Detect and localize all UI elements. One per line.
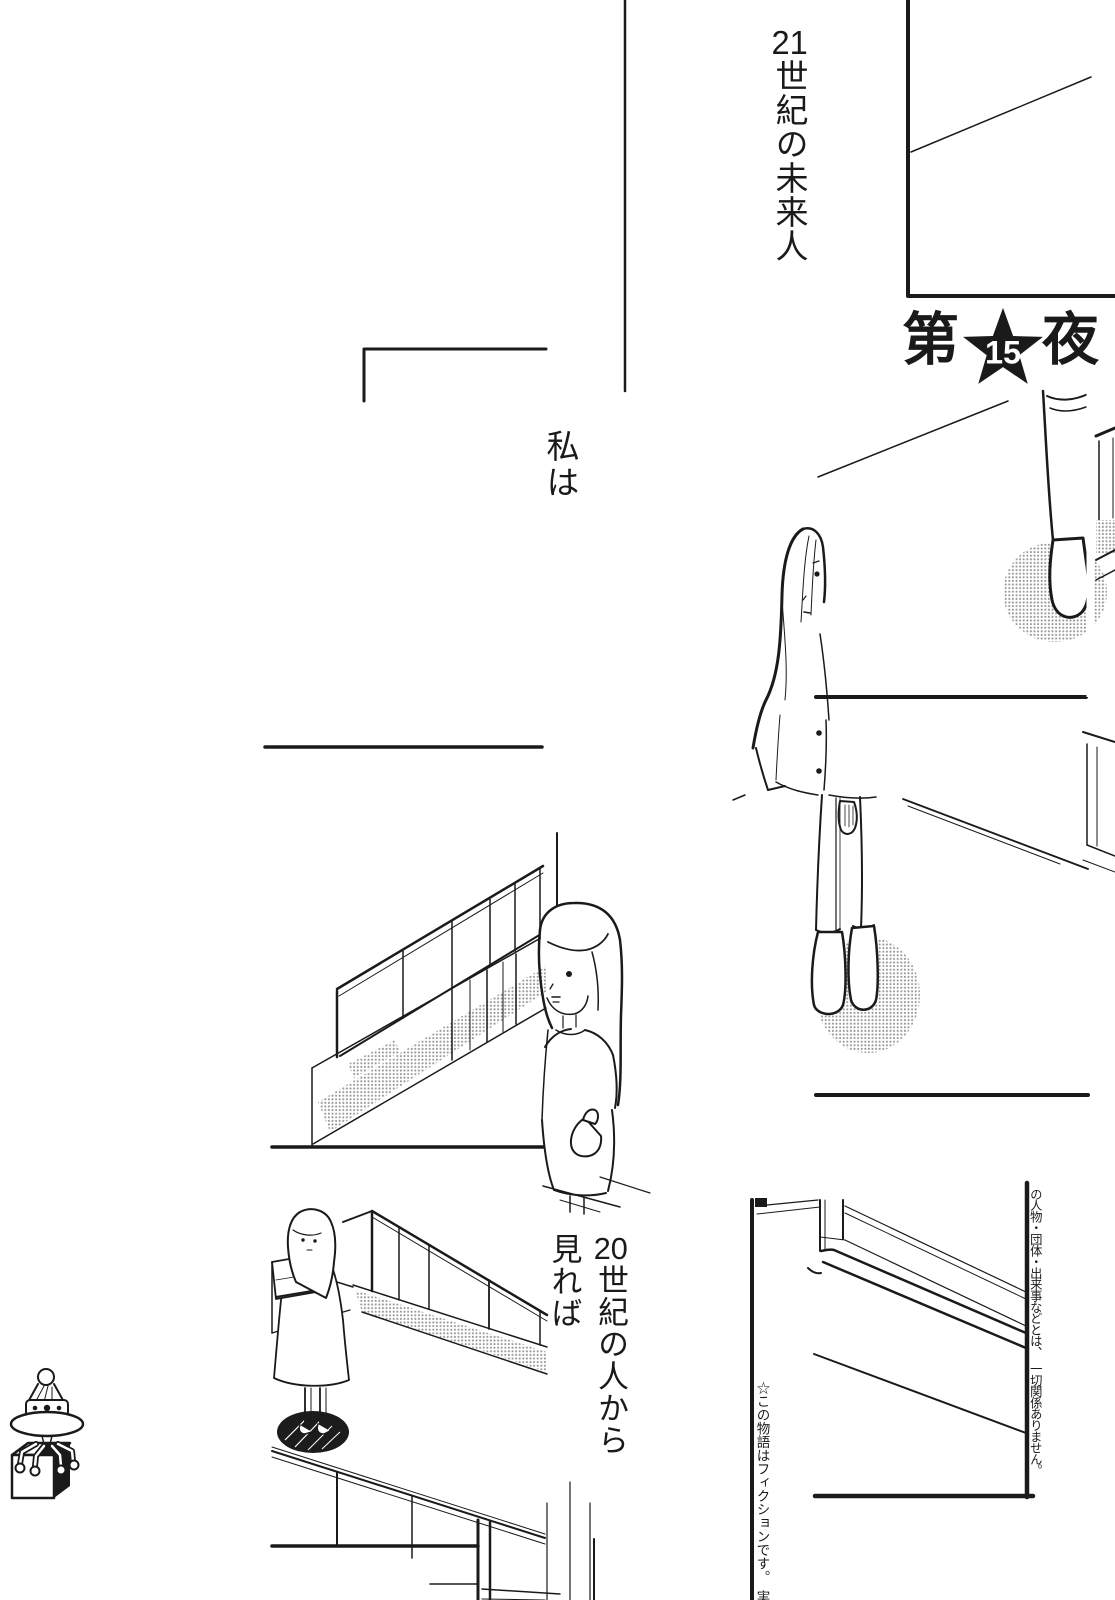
panel-gutter: [1087, 390, 1095, 697]
caption-from-line1-tail: 世紀の人から: [593, 1264, 628, 1456]
window-frame: [1083, 732, 1115, 742]
floor-line: [814, 1354, 1026, 1433]
hair-fill: [540, 903, 622, 1105]
caption-opening-tail: 世紀の未来人: [771, 59, 808, 263]
floor-edge: [903, 799, 1088, 869]
ufo-robot-carrying-cube-icon: [11, 1369, 83, 1498]
caption-from-line1: 20世紀の人から: [587, 1233, 634, 1456]
chapter-title-suffix: 夜: [1042, 312, 1099, 369]
disclaimer-column-second: の人物・団体・出来事などとは、 一切関係ありません。: [1029, 1188, 1041, 1476]
top-right-panel: [908, 0, 1115, 296]
saucer: [11, 1412, 83, 1436]
bottom-right-window-panel: [752, 1183, 1033, 1600]
window-sill: [821, 1250, 1026, 1333]
caption-from: 20世紀の人から見れば: [540, 1233, 633, 1456]
antenna-ball: [38, 1369, 54, 1385]
right-upper-panel: [816, 390, 1107, 697]
button: [816, 768, 822, 774]
leg: [860, 797, 862, 928]
foot: [848, 926, 877, 1010]
caption-from-digits: 20: [593, 1233, 628, 1264]
railing-top: [337, 866, 543, 989]
button: [816, 730, 822, 736]
eye-dot: [566, 971, 572, 977]
partial-panel-corner: [364, 349, 546, 401]
monologue-i: 私は: [544, 429, 577, 501]
leg: [816, 795, 822, 930]
disclaimer-column-first: ☆この物語はフィクションです。 実在: [755, 1381, 769, 1600]
girl-figure-right: [733, 528, 920, 1053]
caption-opening: 21世紀の未来人: [773, 26, 806, 263]
foot: [1050, 538, 1089, 617]
manga-page: 21世紀の未来人 第 15 夜 私は 20世紀の人から見れば ☆この物語はフィク…: [0, 0, 1115, 1600]
girl-figure-small: [272, 1209, 349, 1453]
leg-line: [1043, 391, 1053, 540]
girl-shadow-dark: [277, 1411, 349, 1453]
foot: [812, 932, 846, 1014]
chapter-title-prefix: 第: [902, 312, 959, 369]
right-strip-panel: [1096, 428, 1115, 580]
central-balcony-panel: [265, 747, 557, 1147]
lower-railing: [272, 1447, 545, 1534]
caption-opening-digits: 21: [771, 26, 808, 59]
eye-dot: [301, 1238, 304, 1241]
hair-back: [753, 529, 803, 748]
eye-dot: [313, 1239, 316, 1242]
parapet-halftone-band: [355, 1290, 547, 1372]
ceiling-line: [818, 401, 1008, 477]
star-icon: 15: [961, 302, 1045, 394]
hand: [839, 801, 857, 834]
eye-dot: [814, 571, 819, 576]
girl-figure-center: [539, 903, 650, 1214]
caption-from-line2: 見れば: [540, 1233, 587, 1456]
skirt: [542, 1120, 554, 1190]
chapter-number: 15: [985, 334, 1021, 370]
hand: [571, 1118, 601, 1156]
